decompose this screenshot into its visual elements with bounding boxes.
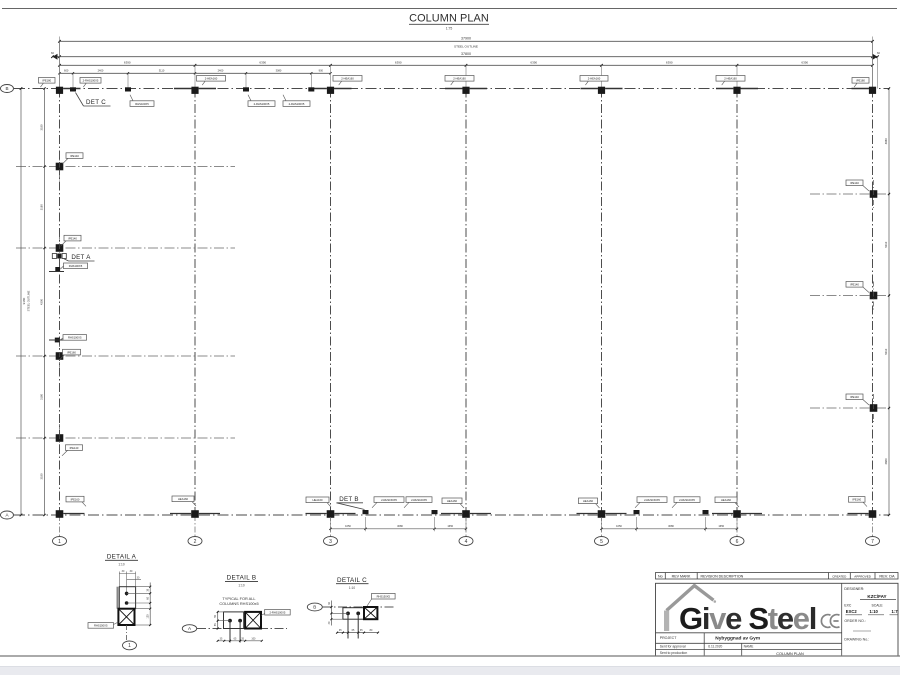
svg-text:2-RHS100X5: 2-RHS100X5 xyxy=(289,102,305,106)
svg-text:37800: 37800 xyxy=(461,52,471,56)
svg-text:NAME: NAME xyxy=(744,644,755,648)
svg-text:EXC: EXC xyxy=(844,603,852,607)
svg-text:2-RHS150X5: 2-RHS150X5 xyxy=(381,498,397,502)
svg-text:6390: 6390 xyxy=(530,60,537,64)
svg-text:STEEL OUTLINE: STEEL OUTLINE xyxy=(454,44,478,48)
svg-text:2-HEA160: 2-HEA160 xyxy=(724,77,737,81)
svg-text:1650: 1650 xyxy=(447,524,453,528)
svg-text:6390: 6390 xyxy=(801,60,808,64)
svg-text:3180: 3180 xyxy=(40,204,44,210)
svg-text:DRAWING No.:: DRAWING No.: xyxy=(844,637,869,641)
svg-text:KZC/FAY: KZC/FAY xyxy=(867,594,886,599)
svg-text:HEA160: HEA160 xyxy=(178,497,189,501)
svg-text:DETAIL A: DETAIL A xyxy=(107,554,137,561)
svg-text:IPE140: IPE140 xyxy=(70,446,79,450)
svg-text:DETAIL B: DETAIL B xyxy=(227,575,257,582)
svg-text:3080: 3080 xyxy=(276,69,282,73)
svg-text:6390: 6390 xyxy=(395,60,402,64)
svg-text:RHS100X5: RHS100X5 xyxy=(135,102,149,106)
svg-text:3180: 3180 xyxy=(40,394,44,400)
svg-text:CREATED: CREATED xyxy=(832,574,847,578)
svg-text:Sent to production: Sent to production xyxy=(660,651,688,655)
svg-text:COLUMN PLAN: COLUMN PLAN xyxy=(409,13,489,25)
svg-text:ORDER NO.:: ORDER NO.: xyxy=(844,619,865,623)
svg-text:37900: 37900 xyxy=(461,37,471,41)
svg-text:IPE180: IPE180 xyxy=(42,79,51,83)
svg-text:5010: 5010 xyxy=(884,241,888,247)
svg-text:2: 2 xyxy=(194,539,197,545)
svg-text:HEA160: HEA160 xyxy=(583,499,594,503)
svg-text:RHS100X5: RHS100X5 xyxy=(68,336,82,340)
svg-text:Give Steel: Give Steel xyxy=(679,601,816,636)
svg-text:IPE160: IPE160 xyxy=(71,497,80,501)
svg-text:2-RHS100X5: 2-RHS100X5 xyxy=(83,79,99,83)
svg-text:6: 6 xyxy=(736,539,739,545)
svg-text:IPE140: IPE140 xyxy=(850,181,859,185)
svg-text:2-RHS150X5: 2-RHS150X5 xyxy=(644,498,660,502)
svg-text:2-HEA160: 2-HEA160 xyxy=(588,77,601,81)
svg-text:1: 1 xyxy=(128,643,131,649)
svg-text:REV. DA: REV. DA xyxy=(879,574,895,579)
svg-text:3080: 3080 xyxy=(668,524,674,528)
svg-text:1:7: 1:7 xyxy=(892,609,899,614)
svg-text:3080: 3080 xyxy=(397,524,403,528)
svg-text:REV MARK: REV MARK xyxy=(672,574,691,578)
svg-text:IPE140: IPE140 xyxy=(68,236,77,240)
svg-text:HEA160: HEA160 xyxy=(312,498,323,502)
svg-text:1:10: 1:10 xyxy=(118,563,124,567)
svg-text:EXC2: EXC2 xyxy=(846,609,858,614)
svg-text:9180: 9180 xyxy=(22,297,26,304)
svg-text:SCALE: SCALE xyxy=(872,603,884,607)
svg-text:2-RHS100X5: 2-RHS100X5 xyxy=(254,102,270,106)
svg-text:4300: 4300 xyxy=(40,299,44,305)
svg-text:1650: 1650 xyxy=(345,524,351,528)
svg-text:COLUMNS RHS100x5: COLUMNS RHS100x5 xyxy=(219,601,258,606)
svg-text:100: 100 xyxy=(251,637,256,640)
svg-text:1650: 1650 xyxy=(718,524,724,528)
svg-text:REVISION DESCRIPTION: REVISION DESCRIPTION xyxy=(701,574,744,578)
svg-text:3: 3 xyxy=(329,539,332,545)
svg-text:IPE160: IPE160 xyxy=(67,350,76,354)
svg-text:6390: 6390 xyxy=(124,60,131,64)
svg-text:RHS100X5: RHS100X5 xyxy=(69,264,83,268)
svg-text:HEA160: HEA160 xyxy=(721,498,732,502)
svg-text:IPE140: IPE140 xyxy=(850,283,859,287)
svg-text:2-HEA160: 2-HEA160 xyxy=(341,77,354,81)
svg-text:6390: 6390 xyxy=(259,60,266,64)
svg-text:1:10: 1:10 xyxy=(238,584,244,588)
svg-text:4880: 4880 xyxy=(884,458,888,464)
svg-text:2-HEA160: 2-HEA160 xyxy=(205,77,218,81)
svg-text:1650: 1650 xyxy=(616,524,622,528)
svg-text:IPE180: IPE180 xyxy=(856,79,865,83)
svg-text:1: 1 xyxy=(58,539,61,545)
svg-text:Nybyggnad av Gym: Nybyggnad av Gym xyxy=(715,636,760,642)
svg-text:1:10: 1:10 xyxy=(870,609,879,614)
svg-text:RHS150X5: RHS150X5 xyxy=(94,624,108,628)
svg-text:2400: 2400 xyxy=(218,69,224,73)
svg-text:2400: 2400 xyxy=(98,69,104,73)
svg-text:6390: 6390 xyxy=(666,60,673,64)
svg-text:Sent for approval: Sent for approval xyxy=(660,645,686,649)
svg-text:No: No xyxy=(658,574,663,578)
svg-text:5010: 5010 xyxy=(884,348,888,354)
svg-text:3110: 3110 xyxy=(159,69,165,73)
svg-text:2-RHS100X5: 2-RHS100X5 xyxy=(270,611,286,615)
svg-text:4: 4 xyxy=(465,539,468,545)
svg-text:5: 5 xyxy=(600,539,603,545)
svg-text:2-RHS100X5: 2-RHS100X5 xyxy=(679,498,695,502)
svg-text:PROJECT: PROJECT xyxy=(660,636,678,640)
svg-text:900: 900 xyxy=(319,69,324,73)
svg-text:STEEL OUTLINE: STEEL OUTLINE xyxy=(27,290,31,311)
svg-text:APPROVED: APPROVED xyxy=(854,574,872,578)
svg-text:B: B xyxy=(313,605,316,610)
svg-text:3180: 3180 xyxy=(40,473,44,479)
svg-text:DET C: DET C xyxy=(86,99,106,106)
svg-text:DET A: DET A xyxy=(71,254,91,261)
svg-text:1:10: 1:10 xyxy=(349,586,355,590)
svg-text:1:75: 1:75 xyxy=(446,27,453,31)
svg-text:6.11.2020: 6.11.2020 xyxy=(708,645,722,649)
svg-text:HEA160: HEA160 xyxy=(447,499,458,503)
svg-text:DETAIL C: DETAIL C xyxy=(337,577,367,584)
svg-text:IPE140: IPE140 xyxy=(850,395,859,399)
svg-text:IPE160: IPE160 xyxy=(852,498,861,502)
svg-text:B: B xyxy=(5,86,8,91)
svg-text:4880: 4880 xyxy=(884,138,888,144)
svg-text:RHS150X5: RHS150X5 xyxy=(377,595,391,599)
svg-text:7: 7 xyxy=(871,539,874,545)
svg-text:3180: 3180 xyxy=(40,124,44,130)
svg-text:600: 600 xyxy=(64,69,69,73)
svg-text:DESIGNER:: DESIGNER: xyxy=(844,587,864,591)
svg-text:100: 100 xyxy=(147,614,150,619)
svg-text:2-HEA160: 2-HEA160 xyxy=(453,77,466,81)
svg-text:DET B: DET B xyxy=(339,496,359,503)
svg-text:IPE140: IPE140 xyxy=(70,154,79,158)
svg-text:2-RHS100X5: 2-RHS100X5 xyxy=(411,498,427,502)
